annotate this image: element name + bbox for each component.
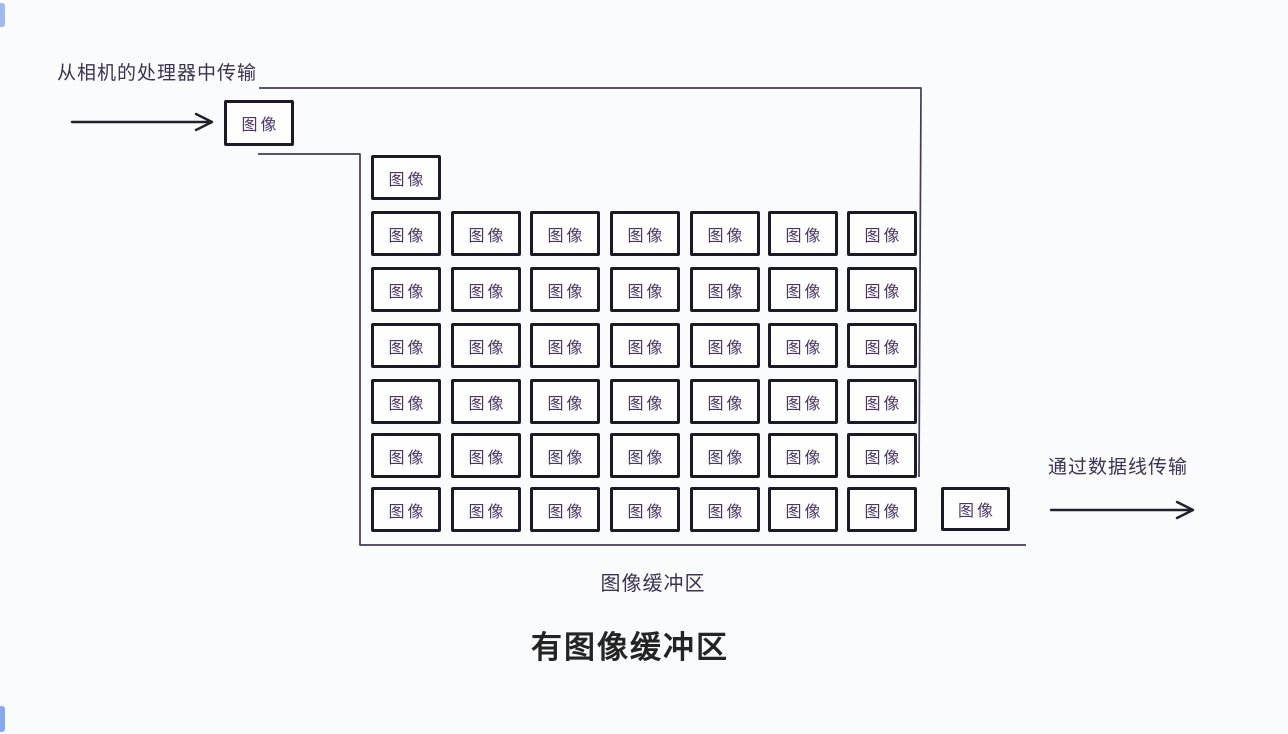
input-caption: 从相机的处理器中传输 bbox=[57, 58, 257, 85]
buffer-image-box: 图像 bbox=[371, 379, 441, 424]
buffer-image-box: 图像 bbox=[610, 323, 680, 368]
image-box-label: 图像 bbox=[544, 334, 585, 358]
image-box-label: 图像 bbox=[704, 498, 745, 522]
buffer-image-box: 图像 bbox=[690, 487, 760, 532]
image-box-label: 图像 bbox=[861, 278, 902, 302]
buffer-image-box: 图像 bbox=[847, 211, 917, 256]
buffer-image-box: 图像 bbox=[451, 379, 521, 424]
page-accent-top-left bbox=[0, 3, 5, 27]
buffer-image-box: 图像 bbox=[371, 323, 441, 368]
image-box-label: 图像 bbox=[955, 497, 996, 521]
image-box-label: 图像 bbox=[544, 498, 585, 522]
buffer-image-box: 图像 bbox=[768, 211, 838, 256]
buffer-image-box: 图像 bbox=[768, 379, 838, 424]
buffer-image-box: 图像 bbox=[690, 433, 760, 478]
buffer-image-box: 图像 bbox=[690, 323, 760, 368]
image-box-label: 图像 bbox=[861, 498, 902, 522]
buffer-image-box: 图像 bbox=[371, 211, 441, 256]
image-box-label: 图像 bbox=[782, 222, 823, 246]
image-box-label: 图像 bbox=[544, 222, 585, 246]
buffer-caption: 图像缓冲区 bbox=[553, 567, 753, 596]
output-caption: 通过数据线传输 bbox=[1048, 452, 1188, 479]
image-box-label: 图像 bbox=[465, 498, 506, 522]
buffer-image-box: 图像 bbox=[690, 267, 760, 312]
exit-image-box: 图像 bbox=[941, 487, 1010, 531]
buffer-image-box: 图像 bbox=[847, 267, 917, 312]
image-box-label: 图像 bbox=[782, 278, 823, 302]
entry-image-box: 图像 bbox=[224, 100, 294, 146]
buffer-image-box: 图像 bbox=[530, 267, 600, 312]
image-box-label: 图像 bbox=[624, 390, 665, 414]
buffer-image-box: 图像 bbox=[530, 379, 600, 424]
image-box-label: 图像 bbox=[238, 111, 279, 135]
buffer-image-box: 图像 bbox=[690, 379, 760, 424]
image-box-label: 图像 bbox=[465, 444, 506, 468]
buffer-image-box: 图像 bbox=[371, 155, 441, 200]
image-box-label: 图像 bbox=[385, 444, 426, 468]
buffer-image-box: 图像 bbox=[371, 267, 441, 312]
buffer-image-box: 图像 bbox=[371, 433, 441, 478]
buffer-image-box: 图像 bbox=[451, 323, 521, 368]
image-box-label: 图像 bbox=[704, 390, 745, 414]
input-arrow bbox=[72, 114, 212, 130]
buffer-image-box: 图像 bbox=[530, 433, 600, 478]
buffer-image-box: 图像 bbox=[451, 267, 521, 312]
image-box-label: 图像 bbox=[544, 278, 585, 302]
diagram-title: 有图像缓冲区 bbox=[430, 622, 830, 667]
buffer-image-box: 图像 bbox=[610, 487, 680, 532]
image-box-label: 图像 bbox=[385, 278, 426, 302]
buffer-image-box: 图像 bbox=[610, 211, 680, 256]
image-box-label: 图像 bbox=[782, 498, 823, 522]
buffer-image-box: 图像 bbox=[690, 211, 760, 256]
image-box-label: 图像 bbox=[704, 278, 745, 302]
image-box-label: 图像 bbox=[624, 334, 665, 358]
image-box-label: 图像 bbox=[782, 390, 823, 414]
image-box-label: 图像 bbox=[465, 334, 506, 358]
image-box-label: 图像 bbox=[861, 334, 902, 358]
image-box-label: 图像 bbox=[782, 444, 823, 468]
image-box-label: 图像 bbox=[704, 444, 745, 468]
buffer-image-box: 图像 bbox=[451, 211, 521, 256]
image-box-label: 图像 bbox=[624, 498, 665, 522]
image-box-label: 图像 bbox=[782, 334, 823, 358]
image-box-label: 图像 bbox=[544, 390, 585, 414]
buffer-image-box: 图像 bbox=[451, 433, 521, 478]
buffer-image-box: 图像 bbox=[610, 379, 680, 424]
buffer-image-box: 图像 bbox=[371, 487, 441, 532]
buffer-image-box: 图像 bbox=[847, 433, 917, 478]
image-box-label: 图像 bbox=[861, 444, 902, 468]
image-box-label: 图像 bbox=[861, 222, 902, 246]
image-box-label: 图像 bbox=[385, 222, 426, 246]
image-box-label: 图像 bbox=[704, 222, 745, 246]
image-box-label: 图像 bbox=[624, 444, 665, 468]
buffer-image-box: 图像 bbox=[768, 433, 838, 478]
buffer-image-box: 图像 bbox=[768, 487, 838, 532]
image-box-label: 图像 bbox=[861, 390, 902, 414]
image-box-label: 图像 bbox=[544, 444, 585, 468]
image-box-label: 图像 bbox=[385, 390, 426, 414]
image-box-label: 图像 bbox=[465, 278, 506, 302]
image-box-label: 图像 bbox=[465, 390, 506, 414]
image-box-label: 图像 bbox=[385, 498, 426, 522]
image-box-label: 图像 bbox=[624, 278, 665, 302]
image-box-label: 图像 bbox=[704, 334, 745, 358]
buffer-image-box: 图像 bbox=[530, 211, 600, 256]
buffer-image-box: 图像 bbox=[610, 433, 680, 478]
buffer-image-box: 图像 bbox=[768, 323, 838, 368]
buffer-image-box: 图像 bbox=[530, 487, 600, 532]
output-arrow bbox=[1051, 502, 1193, 518]
diagram-canvas: 从相机的处理器中传输 图像 图像图像图像图像图像图像图像图像图像图像图像图像图像… bbox=[0, 0, 1288, 734]
buffer-image-box: 图像 bbox=[530, 323, 600, 368]
image-box-label: 图像 bbox=[385, 166, 426, 190]
buffer-image-box: 图像 bbox=[847, 323, 917, 368]
buffer-image-box: 图像 bbox=[610, 267, 680, 312]
buffer-image-box: 图像 bbox=[847, 487, 917, 532]
buffer-image-box: 图像 bbox=[451, 487, 521, 532]
buffer-image-box: 图像 bbox=[847, 379, 917, 424]
image-box-label: 图像 bbox=[385, 334, 426, 358]
image-box-label: 图像 bbox=[465, 222, 506, 246]
page-accent-bottom-left bbox=[0, 706, 5, 732]
buffer-image-box: 图像 bbox=[768, 267, 838, 312]
image-box-label: 图像 bbox=[624, 222, 665, 246]
